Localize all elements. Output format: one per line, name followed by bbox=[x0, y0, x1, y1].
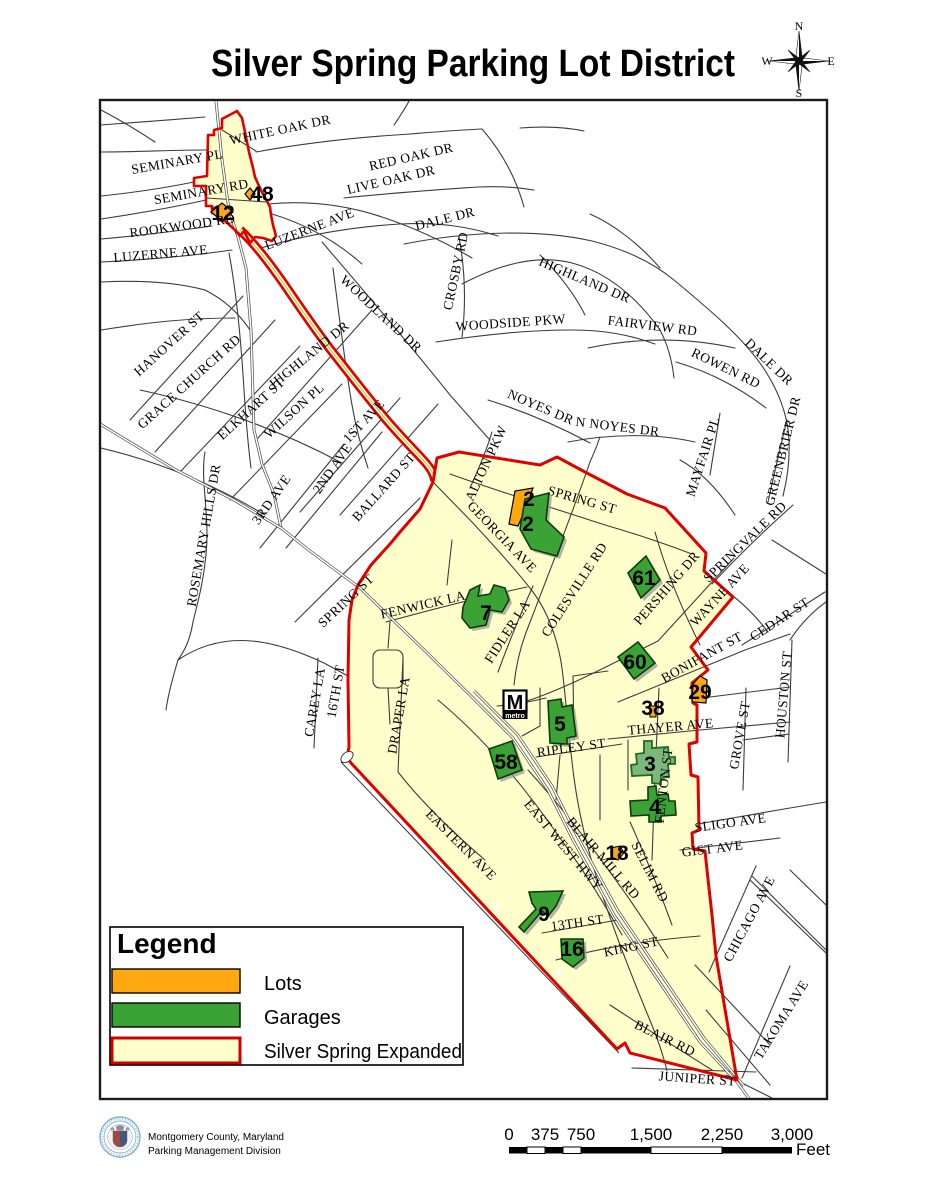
svg-text:metro: metro bbox=[505, 713, 524, 720]
svg-text:9: 9 bbox=[538, 903, 550, 926]
svg-text:4: 4 bbox=[649, 796, 661, 819]
svg-text:E: E bbox=[827, 54, 834, 68]
svg-text:58: 58 bbox=[494, 751, 518, 774]
svg-text:1,500: 1,500 bbox=[630, 1125, 673, 1144]
svg-text:Silver Spring Parking Lot Dist: Silver Spring Parking Lot District bbox=[211, 43, 735, 85]
svg-text:S: S bbox=[796, 86, 803, 100]
svg-text:7: 7 bbox=[480, 602, 492, 625]
svg-text:Legend: Legend bbox=[117, 928, 217, 959]
svg-text:Parking Management Division: Parking Management Division bbox=[148, 1146, 281, 1157]
svg-text:2: 2 bbox=[523, 488, 535, 511]
svg-text:W: W bbox=[761, 54, 773, 68]
svg-text:375: 375 bbox=[531, 1125, 559, 1144]
svg-text:Montgomery County, Maryland: Montgomery County, Maryland bbox=[148, 1132, 284, 1143]
svg-text:750: 750 bbox=[567, 1125, 595, 1144]
svg-text:60: 60 bbox=[623, 651, 646, 674]
svg-text:2,250: 2,250 bbox=[701, 1125, 744, 1144]
svg-text:Feet: Feet bbox=[796, 1140, 830, 1159]
svg-text:18: 18 bbox=[605, 842, 629, 865]
svg-text:Lots: Lots bbox=[264, 973, 302, 995]
svg-text:Garages: Garages bbox=[264, 1007, 341, 1029]
svg-text:N: N bbox=[795, 19, 804, 33]
svg-text:5: 5 bbox=[554, 713, 566, 736]
svg-text:3: 3 bbox=[644, 753, 656, 776]
svg-text:29: 29 bbox=[688, 681, 711, 704]
svg-text:61: 61 bbox=[632, 567, 656, 590]
svg-text:2: 2 bbox=[522, 513, 534, 536]
svg-text:M: M bbox=[507, 692, 524, 714]
svg-text:16: 16 bbox=[560, 938, 583, 961]
svg-text:Silver Spring Expanded: Silver Spring Expanded bbox=[264, 1041, 462, 1063]
svg-text:48: 48 bbox=[250, 183, 274, 206]
svg-text:12: 12 bbox=[211, 202, 234, 225]
svg-text:0: 0 bbox=[504, 1125, 513, 1144]
svg-text:38: 38 bbox=[641, 697, 665, 720]
